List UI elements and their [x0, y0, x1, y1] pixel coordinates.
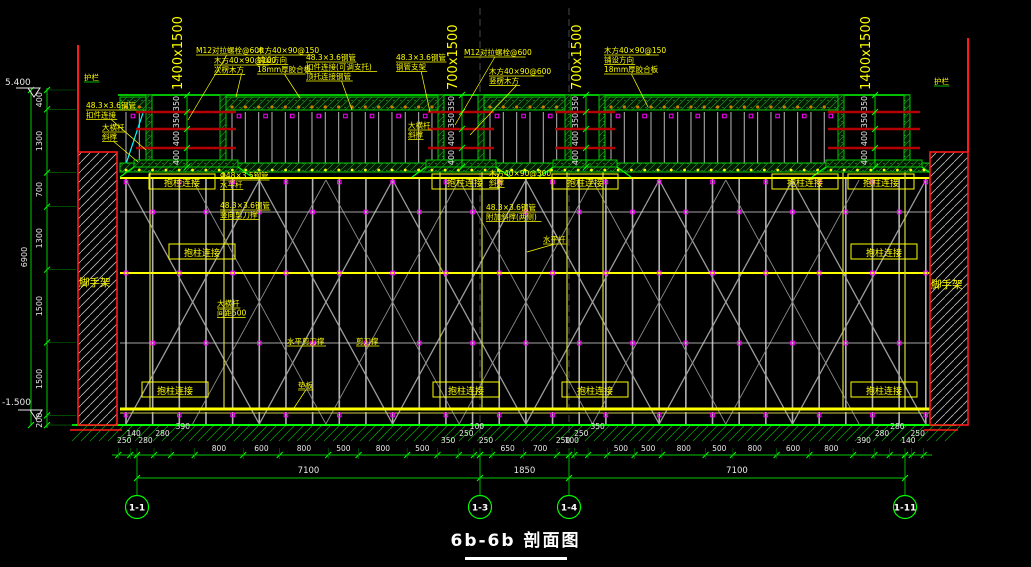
boxed-label-text: 抱柱连接 [866, 247, 902, 259]
drawing-svg: 脚手架脚手架 3503504004001400x1500350350400400… [0, 0, 1031, 567]
annotation-text: 大横杆 [102, 122, 125, 132]
annotation-text: 护栏 [934, 76, 949, 86]
u-head-dot [643, 169, 646, 172]
u-head-dot [776, 169, 779, 172]
annotation-text: 大横杆 [408, 120, 431, 130]
beam-dim-value: 350 [447, 96, 456, 111]
bottom-dim-value: 350 [441, 436, 456, 445]
ground-hatch [684, 425, 700, 441]
joist-dot [257, 105, 260, 108]
ground-hatch [99, 425, 115, 441]
ground-hatch [279, 425, 295, 441]
coupler-marker [548, 114, 552, 118]
joist-dot [716, 105, 719, 108]
joist-dot [417, 105, 420, 108]
coupler-marker [317, 114, 321, 118]
bottom-dim-value: 600 [254, 444, 269, 453]
u-head-dot [351, 169, 354, 172]
coupler-marker [696, 114, 700, 118]
ground-hatch [306, 425, 322, 441]
annotation-text: 扣件连接(可调支托) [306, 62, 372, 72]
u-head-dot [404, 169, 407, 172]
u-head-dot [577, 169, 580, 172]
ground-hatch [675, 425, 691, 441]
annotation-text: 18mm厚胶合板 [257, 64, 312, 74]
beam-form-base [134, 160, 238, 167]
ground-hatch [819, 425, 835, 441]
ground-hatch [198, 425, 214, 441]
ground-hatch [333, 425, 349, 441]
u-head-dot [736, 169, 739, 172]
bottom-dim-value: 600 [786, 444, 801, 453]
beam-dim-value: 350 [172, 96, 181, 111]
beam-dim-value: 400 [447, 150, 456, 165]
joist-dot [284, 105, 287, 108]
ground-hatch [738, 425, 754, 441]
ground-hatch [720, 425, 736, 441]
joist-dot [729, 105, 732, 108]
joist-dot [515, 105, 518, 108]
ground-hatch [801, 425, 817, 441]
boxed-label-text: 抱柱连接 [164, 177, 200, 189]
left-dim-value: 200 [35, 413, 44, 428]
ground-hatch [657, 425, 673, 441]
ground-hatch [225, 425, 241, 441]
annotation-text: 木方40×90@150 [604, 45, 666, 55]
u-head-dot [391, 169, 394, 172]
u-head-dot [617, 169, 620, 172]
boxed-label-text: 抱柱连接 [863, 177, 899, 189]
joist-dot [488, 105, 491, 108]
annotation-text: 48.3×3.6钢管 [220, 200, 270, 210]
coupler-marker [131, 114, 135, 118]
overall-dim-value: 7100 [726, 466, 748, 476]
joist-dot [756, 105, 759, 108]
beam-dim-value: 400 [447, 131, 456, 146]
u-head-dot [790, 169, 793, 172]
ground-hatch [810, 425, 826, 441]
boxed-label-text: 抱柱连接 [567, 177, 603, 189]
leader-line [236, 75, 241, 98]
bottom-dim-value: 650 [500, 444, 515, 453]
boxed-label-text: 抱柱连接 [866, 385, 902, 397]
annotation-text: 间距500 [217, 309, 247, 318]
ground-hatch [387, 425, 403, 441]
bottom-dim-value: 280 [890, 422, 905, 431]
ground-hatch [216, 425, 232, 441]
u-head-dot [883, 169, 886, 172]
annotation-text: 48.3×3.6钢管 [486, 202, 536, 212]
beam-form-base [426, 160, 496, 167]
u-head-dot [311, 169, 314, 172]
u-head-dot [603, 169, 606, 172]
title-block: 6b-6b 剖面图 [0, 526, 1031, 560]
joist-dot [689, 105, 692, 108]
annotation-text: M12对拉螺栓@600 [196, 45, 264, 55]
u-head-dot [803, 169, 806, 172]
leader-line [527, 244, 555, 252]
joist-dot [783, 105, 786, 108]
beam-dim-value: 400 [172, 150, 181, 165]
joist-dot [364, 105, 367, 108]
ground-hatch [405, 425, 421, 441]
annotation-text: 顶托连接钢管 [306, 71, 351, 81]
bottom-dim-value: 800 [677, 444, 692, 453]
wall-label: 脚手架 [79, 276, 111, 289]
overall-dim-value: 1850 [514, 466, 536, 476]
ground-hatch [504, 425, 520, 441]
leader-line [294, 390, 306, 408]
annotation-text: M12对拉螺栓@600 [464, 47, 532, 57]
annotation-text: 次楞木方 [214, 65, 244, 75]
u-head-dot [750, 169, 753, 172]
ground-hatch [297, 425, 313, 441]
ground-hatch [783, 425, 799, 441]
bottom-dim-value: 800 [376, 444, 391, 453]
annotation-text: 水平杆 [220, 180, 243, 190]
coupler-marker [423, 114, 427, 118]
coupler-marker [344, 114, 348, 118]
u-head-dot [670, 169, 673, 172]
u-head-dot [444, 169, 447, 172]
bottom-dim-value: 280 [138, 436, 153, 445]
ground-hatch [639, 425, 655, 441]
ground-hatch [927, 425, 943, 441]
u-head-dot [298, 169, 301, 172]
left-dim-value: 1500 [35, 369, 44, 389]
ground-hatch [756, 425, 772, 441]
bottom-dim-value: 800 [297, 444, 312, 453]
u-head-dot [816, 169, 819, 172]
ground-hatch [270, 425, 286, 441]
boxed-label-text: 抱柱连接 [448, 385, 484, 397]
u-head-dot [856, 169, 859, 172]
u-head-dot [204, 169, 207, 172]
drawing-title: 6b-6b 剖面图 [451, 531, 581, 551]
u-head-dot [377, 169, 380, 172]
u-head-dot [417, 169, 420, 172]
u-head-dot [284, 169, 287, 172]
slab-band [605, 97, 838, 110]
joist-dot [430, 105, 433, 108]
bottom-dim-value: 800 [748, 444, 763, 453]
ground-hatch [324, 425, 340, 441]
beam-dim-value: 350 [571, 113, 580, 128]
bottom-dim-value: 280 [875, 429, 890, 438]
coupler-marker [237, 114, 241, 118]
grid-bubble-label: 1-4 [561, 504, 577, 514]
joist-dot [555, 105, 558, 108]
ground-hatch [189, 425, 205, 441]
formwork-beams [118, 95, 936, 177]
joist-dot [528, 105, 531, 108]
coupler-marker [616, 114, 620, 118]
left-dim-value: 1300 [35, 131, 44, 151]
elevation-bottom: -1.500 [2, 398, 31, 408]
grid-bubbles: 1-11-31-41-11 [126, 496, 917, 519]
ground-hatch [378, 425, 394, 441]
beam-form-base [826, 160, 922, 167]
bottom-dim-value: 800 [824, 444, 839, 453]
ground-hatch [531, 425, 547, 441]
ground-hatch [315, 425, 331, 441]
u-head-dot [138, 169, 141, 172]
ground-hatch [837, 425, 853, 441]
annotation-text: 斜撑 [102, 132, 117, 142]
ground-hatch [702, 425, 718, 441]
joist-dot [138, 105, 141, 108]
grid-bubble-label: 1-11 [894, 504, 917, 514]
bottom-dim-value: 700 [533, 444, 548, 453]
boxed-label-text: 抱柱连接 [577, 385, 613, 397]
ground-hatch [621, 425, 637, 441]
beam-dim-value: 350 [860, 96, 869, 111]
ground-hatch [828, 425, 844, 441]
u-head-dot [484, 169, 487, 172]
annotation-text: 附加斜撑(两侧) [486, 212, 537, 222]
bottom-dim-value: 280 [155, 429, 170, 438]
bottom-dim-value: 500 [712, 444, 727, 453]
u-head-dot [337, 169, 340, 172]
bottom-dim-value: 500 [641, 444, 656, 453]
joist-dot [623, 105, 626, 108]
ground-hatch [288, 425, 304, 441]
u-head-dot [896, 169, 899, 172]
coupler-marker [776, 114, 780, 118]
joist-dot [324, 105, 327, 108]
annotation-text: Φ48×3.5钢管 [220, 170, 269, 180]
ground-hatch [666, 425, 682, 441]
joist-dot [337, 105, 340, 108]
joist-dot [796, 105, 799, 108]
bottom-dim-value: 250 [911, 429, 926, 438]
u-head-dot [630, 169, 633, 172]
u-head-dot [723, 169, 726, 172]
annotation-text: 48.3×3.6钢管 [396, 52, 446, 62]
u-head-dot [843, 169, 846, 172]
ground-hatch [234, 425, 250, 441]
bottom-dim-value: 500 [336, 444, 351, 453]
grid-bubble-label: 1-1 [129, 504, 145, 514]
ground-hatch [495, 425, 511, 441]
ground-hatch [423, 425, 439, 441]
u-head-dot [191, 169, 194, 172]
bottom-dim-value: 800 [212, 444, 227, 453]
bottom-dim-value: 390 [176, 422, 191, 431]
u-head-dot [657, 169, 660, 172]
u-head-dot [763, 169, 766, 172]
annotation-text: 48.3×3.6钢管 [86, 100, 136, 110]
cad-drawing-section: 脚手架脚手架 3503504004001400x1500350350400400… [0, 0, 1031, 567]
annotation-text: 竖楞木方 [489, 76, 519, 86]
coupler-marker [829, 114, 833, 118]
joist-dot [502, 105, 505, 108]
annotation-text: 扣件连接 [86, 110, 116, 120]
joist-dot [542, 105, 545, 108]
beam-size-label: 700x1500 [446, 24, 461, 90]
beam-dim-value: 400 [860, 150, 869, 165]
ground-hatch [513, 425, 529, 441]
ground-hatch [648, 425, 664, 441]
joist-dot [676, 105, 679, 108]
joist-dot [609, 105, 612, 108]
u-head-dot [125, 169, 128, 172]
ground-hatch [207, 425, 223, 441]
beam-dim-value: 400 [571, 131, 580, 146]
joist-dot [649, 105, 652, 108]
ground-hatch [729, 425, 745, 441]
coupler-marker [643, 114, 647, 118]
u-head-dot [271, 169, 274, 172]
annotation-text: 斜撑 [408, 130, 423, 140]
joist-dot [809, 105, 812, 108]
beam-dim-value: 350 [571, 96, 580, 111]
annotation-text: 18mm厚胶合板 [604, 64, 659, 74]
beam-size-label: 1400x1500 [171, 16, 186, 90]
bottom-dim-value: 350 [591, 422, 606, 431]
left-dim-value: 1500 [35, 296, 44, 316]
coupler-marker [522, 114, 526, 118]
ground-hatch [81, 425, 97, 441]
ground-hatch [414, 425, 430, 441]
ground-hatch [603, 425, 619, 441]
ground-hatch [342, 425, 358, 441]
coupler-marker [370, 114, 374, 118]
ground-hatch [90, 425, 106, 441]
u-head-dot [431, 169, 434, 172]
elevation-top: 5.400 [5, 78, 31, 88]
joist-dot [377, 105, 380, 108]
u-head-dot [923, 169, 926, 172]
ground-hatch [774, 425, 790, 441]
u-head-dot [683, 169, 686, 172]
ground-hatch [711, 425, 727, 441]
ground-hatch [351, 425, 367, 441]
joist-dot [769, 105, 772, 108]
slab-band [484, 97, 565, 110]
joist-dot [663, 105, 666, 108]
ground-hatch [693, 425, 709, 441]
boxed-label-text: 抱柱连接 [447, 177, 483, 189]
coupler-marker [290, 114, 294, 118]
beam-size-label: 1400x1500 [859, 16, 874, 90]
u-head-dot [178, 169, 181, 172]
annotation-text: 钢管支架 [396, 62, 426, 72]
left-dim-value: 1300 [35, 228, 44, 248]
annotation-text: 水平剪刀撑 [287, 336, 325, 346]
joist-dot [297, 105, 300, 108]
beam-dim-value: 350 [860, 113, 869, 128]
beam-dim-value: 400 [860, 131, 869, 146]
bottom-dim-value: 390 [857, 436, 872, 445]
joist-dot [743, 105, 746, 108]
ground-hatch [522, 425, 538, 441]
u-head-dot [697, 169, 700, 172]
annotation-text: 垫板 [298, 380, 313, 390]
ground-hatch [252, 425, 268, 441]
ground-hatch [396, 425, 412, 441]
joist-dot [703, 105, 706, 108]
annotation-text: 剪刀撑 [356, 336, 379, 346]
joist-dot [244, 105, 247, 108]
annotation-text: 木方40×90@300 [489, 168, 551, 178]
beam-size-label: 700x1500 [570, 24, 585, 90]
joist-dot [823, 105, 826, 108]
beam-form-base [553, 160, 617, 167]
bottom-dim-value: 100 [470, 422, 485, 431]
joist-dot [310, 105, 313, 108]
wall-label: 脚手架 [931, 278, 963, 291]
u-head-dot [364, 169, 367, 172]
u-head-dot [710, 169, 713, 172]
u-head-dot [151, 169, 154, 172]
boxed-label-text: 抱柱连接 [787, 177, 823, 189]
bottom-dim-value: 250 [574, 429, 589, 438]
ground-hatch [369, 425, 385, 441]
annotation-text: 水平杆 [543, 234, 566, 244]
annotation-text: 护栏 [84, 72, 99, 82]
joist-dot [390, 105, 393, 108]
overall-dim-value: 7100 [298, 466, 320, 476]
beam-dim-value: 400 [571, 150, 580, 165]
overall-height-value: 6900 [20, 247, 29, 267]
coupler-marker [749, 114, 753, 118]
annotation-text: 大横杆 [217, 298, 240, 308]
ground-hatch [360, 425, 376, 441]
left-dim-value: 700 [35, 182, 44, 197]
ground-hatch [936, 425, 952, 441]
coupler-marker [397, 114, 401, 118]
u-head-dot [590, 169, 593, 172]
ground-hatch [792, 425, 808, 441]
u-head-dot [564, 169, 567, 172]
u-head-dot [470, 169, 473, 172]
coupler-marker [495, 114, 499, 118]
ground-hatch [747, 425, 763, 441]
annotation-text: 竖向剪刀撑 [220, 210, 258, 220]
u-head-dot [909, 169, 912, 172]
u-head-dot [830, 169, 833, 172]
coupler-marker [723, 114, 727, 118]
bottom-dim-value: 500 [614, 444, 629, 453]
beam-dim-value: 400 [172, 131, 181, 146]
annotation-text: 木方40×90@600 [489, 66, 551, 76]
joist-dot [404, 105, 407, 108]
annotation-text: 铺设方向 [604, 55, 634, 65]
coupler-marker [802, 114, 806, 118]
ground-hatch [540, 425, 556, 441]
joist-dot [270, 105, 273, 108]
joist-dot [230, 105, 233, 108]
ground-hatch [945, 425, 961, 441]
annotation-text: 铺设方向 [257, 55, 287, 65]
ground-hatch [612, 425, 628, 441]
grid-bubble-label: 1-3 [472, 504, 488, 514]
u-head-dot [165, 169, 168, 172]
ground-hatch [765, 425, 781, 441]
title-underline [465, 557, 567, 560]
ground-hatch [72, 425, 88, 441]
annotation-text: 斜撑 [489, 178, 504, 188]
coupler-marker [264, 114, 268, 118]
ground-hatch [243, 425, 259, 441]
bottom-dim-value: 500 [415, 444, 430, 453]
beam-dim-value: 350 [447, 113, 456, 128]
ground-hatch [630, 425, 646, 441]
annotation-text: 48.3×3.6钢管 [306, 52, 356, 62]
bottom-dim-value: 250 [479, 436, 494, 445]
boxed-label-text: 抱柱连接 [157, 385, 193, 397]
